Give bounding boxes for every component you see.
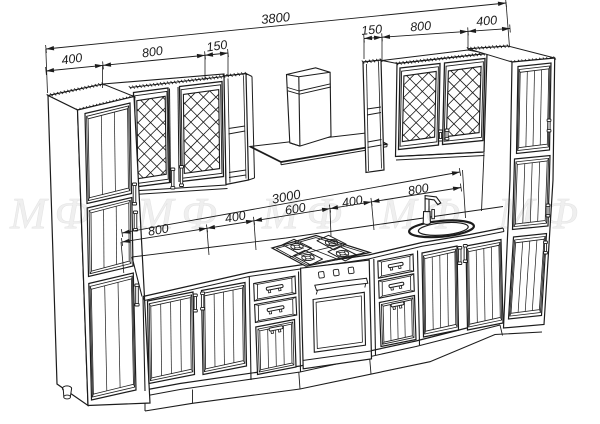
svg-text:МФ: МФ (497, 189, 587, 238)
svg-text:400: 400 (476, 13, 498, 29)
svg-text:800: 800 (141, 44, 164, 61)
svg-text:МФ: МФ (261, 189, 351, 238)
svg-text:150: 150 (361, 22, 383, 38)
svg-text:3800: 3800 (260, 9, 291, 27)
svg-text:МФ: МФ (136, 189, 226, 238)
svg-text:400: 400 (61, 51, 84, 68)
svg-text:800: 800 (410, 19, 432, 35)
svg-text:150: 150 (206, 38, 229, 55)
svg-text:МФ: МФ (9, 189, 99, 238)
svg-text:МФ: МФ (379, 189, 469, 238)
